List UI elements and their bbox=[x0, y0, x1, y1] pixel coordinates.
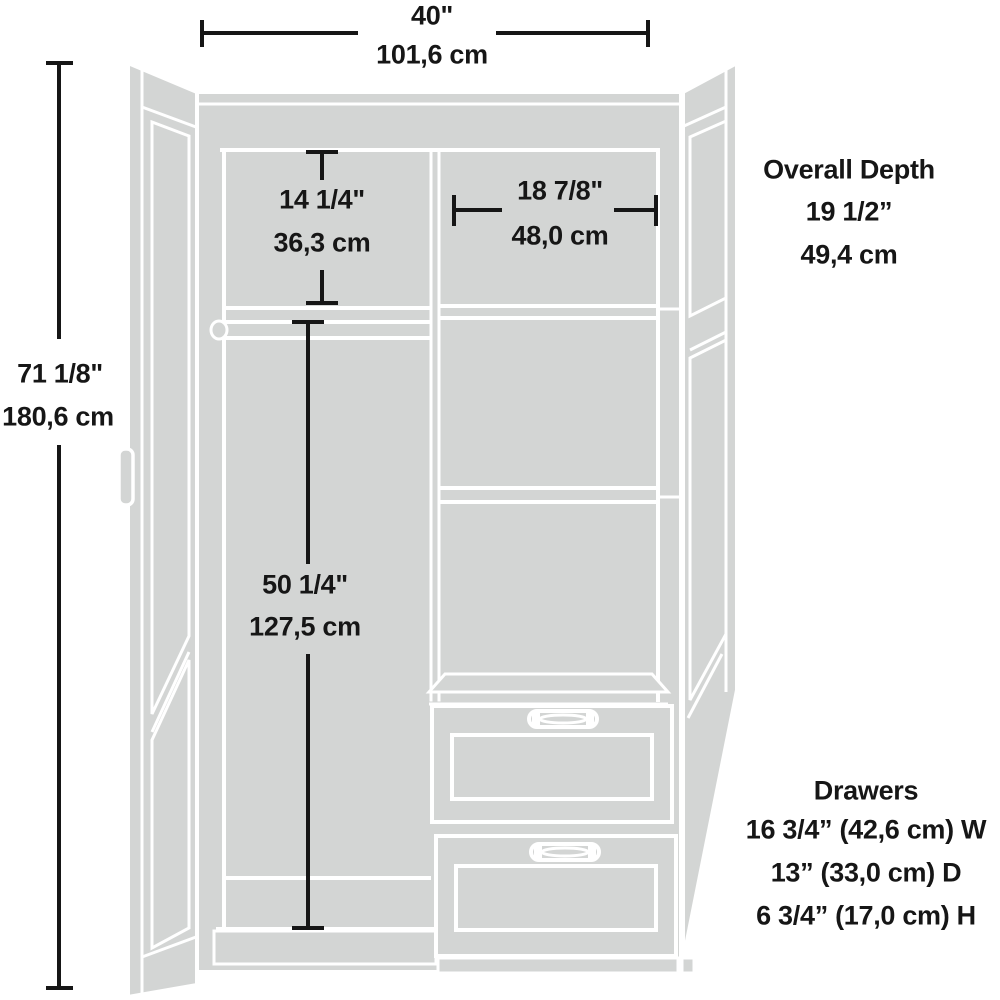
right-door bbox=[683, 63, 737, 956]
drawer-2 bbox=[436, 836, 676, 956]
wardrobe-line-drawing bbox=[0, 0, 1000, 1000]
dim-width-inches: 40" bbox=[411, 3, 453, 30]
drawer-base bbox=[438, 958, 678, 973]
dim-cubby-width-cm: 48,0 cm bbox=[512, 223, 609, 250]
dimension-line-height bbox=[48, 63, 71, 988]
diagram-canvas: 40" 101,6 cm 71 1/8" 180,6 cm 14 1/4" 36… bbox=[0, 0, 1000, 1000]
drawers-title: Drawers bbox=[814, 778, 918, 805]
dim-cubby-height-inches: 14 1/4" bbox=[279, 187, 365, 214]
drawer-handle-icon bbox=[529, 711, 597, 727]
dim-cubby-height-cm: 36,3 cm bbox=[274, 230, 371, 257]
dim-height-cm: 180,6 cm bbox=[2, 404, 114, 431]
overall-depth-inches: 19 1/2” bbox=[806, 199, 892, 226]
drawers-width-spec: 16 3/4” (42,6 cm) W bbox=[746, 817, 986, 844]
left-door bbox=[119, 63, 197, 997]
door-handle-icon bbox=[119, 449, 133, 505]
drawer-handle-icon bbox=[531, 844, 599, 860]
overall-depth-title: Overall Depth bbox=[763, 157, 935, 184]
drawers-height-spec: 6 3/4” (17,0 cm) H bbox=[756, 903, 976, 930]
dim-hanging-height-cm: 127,5 cm bbox=[249, 614, 361, 641]
rod-bracket bbox=[211, 321, 227, 339]
overall-depth-cm: 49,4 cm bbox=[801, 242, 898, 269]
dim-hanging-height-inches: 50 1/4" bbox=[262, 572, 348, 599]
drawer-1 bbox=[432, 706, 672, 822]
shelf-above-drawers bbox=[429, 674, 668, 692]
base-kick bbox=[214, 931, 436, 964]
dim-cubby-width-inches: 18 7/8" bbox=[517, 178, 603, 205]
foot bbox=[682, 958, 694, 973]
drawers-depth-spec: 13” (33,0 cm) D bbox=[771, 860, 962, 887]
dim-width-cm: 101,6 cm bbox=[376, 42, 488, 69]
dim-height-inches: 71 1/8" bbox=[17, 361, 103, 388]
